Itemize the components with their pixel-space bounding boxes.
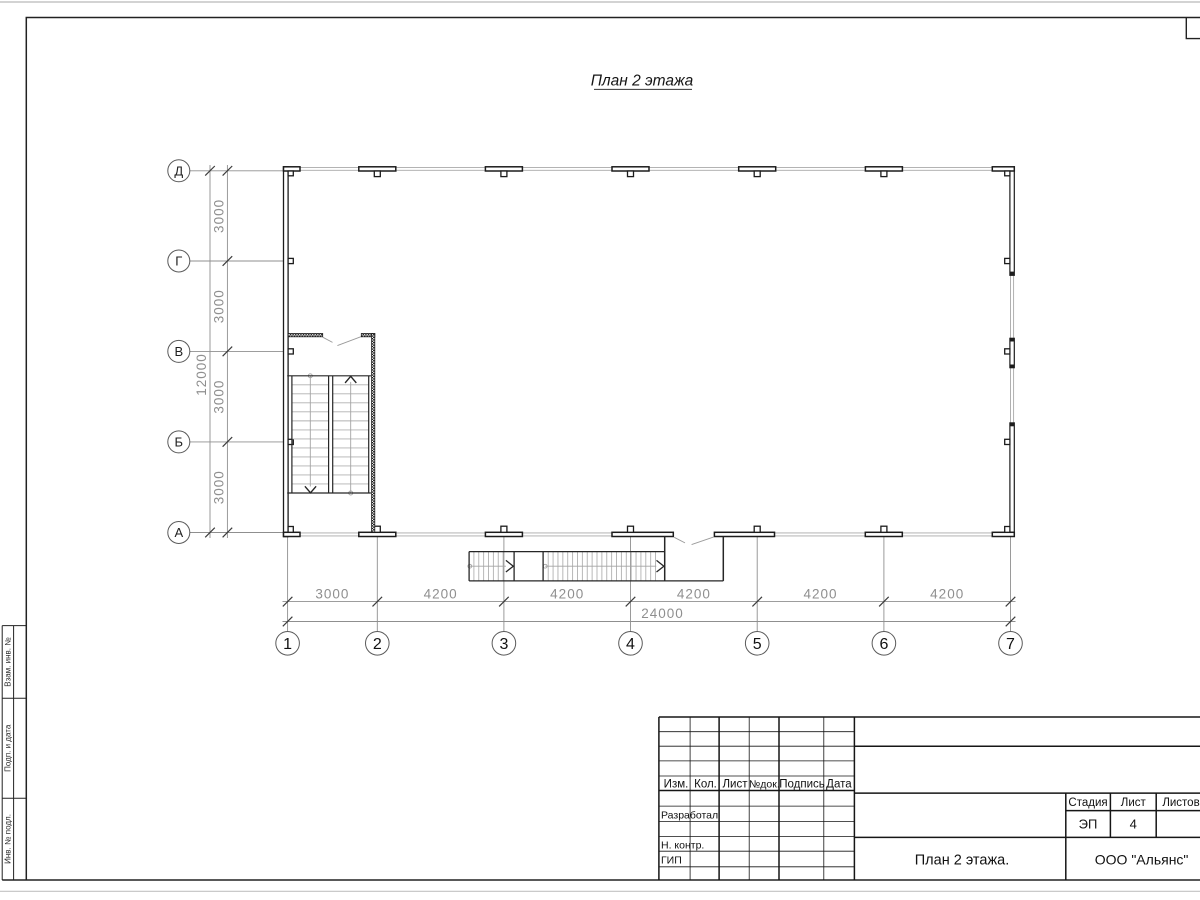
svg-text:3000: 3000 <box>315 586 349 601</box>
svg-text:ГИП: ГИП <box>661 854 682 866</box>
svg-text:Лист: Лист <box>723 778 749 790</box>
svg-text:Н. контр.: Н. контр. <box>661 840 704 852</box>
svg-text:Инв. № подл.: Инв. № подл. <box>4 814 13 864</box>
svg-text:План 2 этажа: План 2 этажа <box>591 73 694 90</box>
svg-text:Подп. и дата: Подп. и дата <box>4 724 13 772</box>
svg-text:24000: 24000 <box>641 606 684 621</box>
svg-text:7: 7 <box>1006 636 1015 653</box>
svg-text:А: А <box>174 525 183 540</box>
svg-text:Д: Д <box>174 163 183 178</box>
svg-text:Разработал: Разработал <box>661 810 718 822</box>
svg-text:Дата: Дата <box>826 778 852 790</box>
svg-text:№док.: №док. <box>749 778 780 790</box>
svg-text:Лист: Лист <box>1121 797 1147 809</box>
svg-text:3000: 3000 <box>212 380 227 414</box>
svg-text:2: 2 <box>373 636 382 653</box>
svg-text:Подпись: Подпись <box>779 778 825 790</box>
svg-text:4: 4 <box>1130 817 1137 832</box>
svg-text:ООО "Альянс": ООО "Альянс" <box>1095 852 1189 868</box>
svg-text:План 2 этажа.: План 2 этажа. <box>915 853 1010 869</box>
svg-text:Б: Б <box>175 435 184 450</box>
svg-text:3000: 3000 <box>212 289 227 323</box>
svg-text:4200: 4200 <box>803 586 837 601</box>
svg-text:3000: 3000 <box>212 199 227 233</box>
svg-text:3000: 3000 <box>212 470 227 504</box>
svg-text:6: 6 <box>879 636 888 653</box>
svg-text:ЭП: ЭП <box>1079 817 1098 832</box>
svg-text:1: 1 <box>283 636 292 653</box>
svg-text:4200: 4200 <box>550 586 584 601</box>
svg-text:Листов: Листов <box>1162 797 1199 809</box>
svg-text:Изм.: Изм. <box>664 778 689 790</box>
svg-text:4: 4 <box>626 636 635 653</box>
svg-text:4200: 4200 <box>424 586 458 601</box>
svg-text:Г: Г <box>175 254 182 269</box>
svg-text:12000: 12000 <box>194 353 209 396</box>
svg-text:Стадия: Стадия <box>1068 797 1107 809</box>
svg-text:4200: 4200 <box>930 586 964 601</box>
svg-text:В: В <box>174 344 183 359</box>
svg-text:4200: 4200 <box>677 586 711 601</box>
svg-text:3: 3 <box>499 636 508 653</box>
svg-text:Кол.: Кол. <box>694 778 717 790</box>
svg-text:Взам. инв. №: Взам. инв. № <box>4 637 13 687</box>
svg-text:5: 5 <box>753 636 762 653</box>
